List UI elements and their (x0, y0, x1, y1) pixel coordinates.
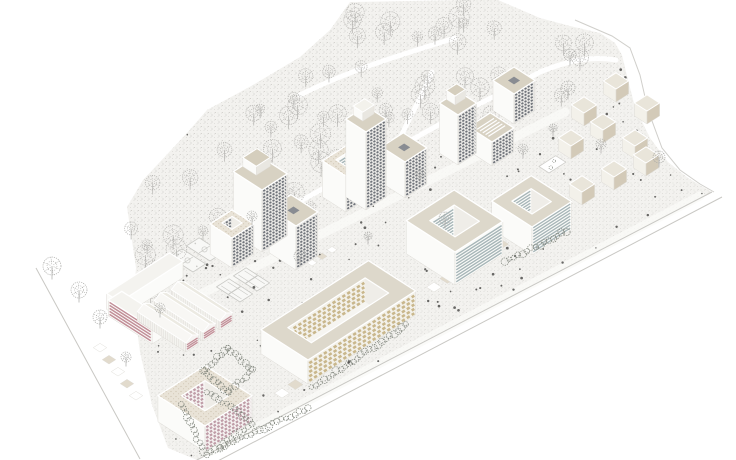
tree (43, 257, 61, 280)
tree (121, 352, 131, 367)
tower-tall-center (346, 99, 386, 210)
masterplan-svg (0, 0, 736, 460)
tree (93, 310, 107, 329)
architectural-site-plan (0, 0, 736, 460)
tree (71, 282, 87, 303)
